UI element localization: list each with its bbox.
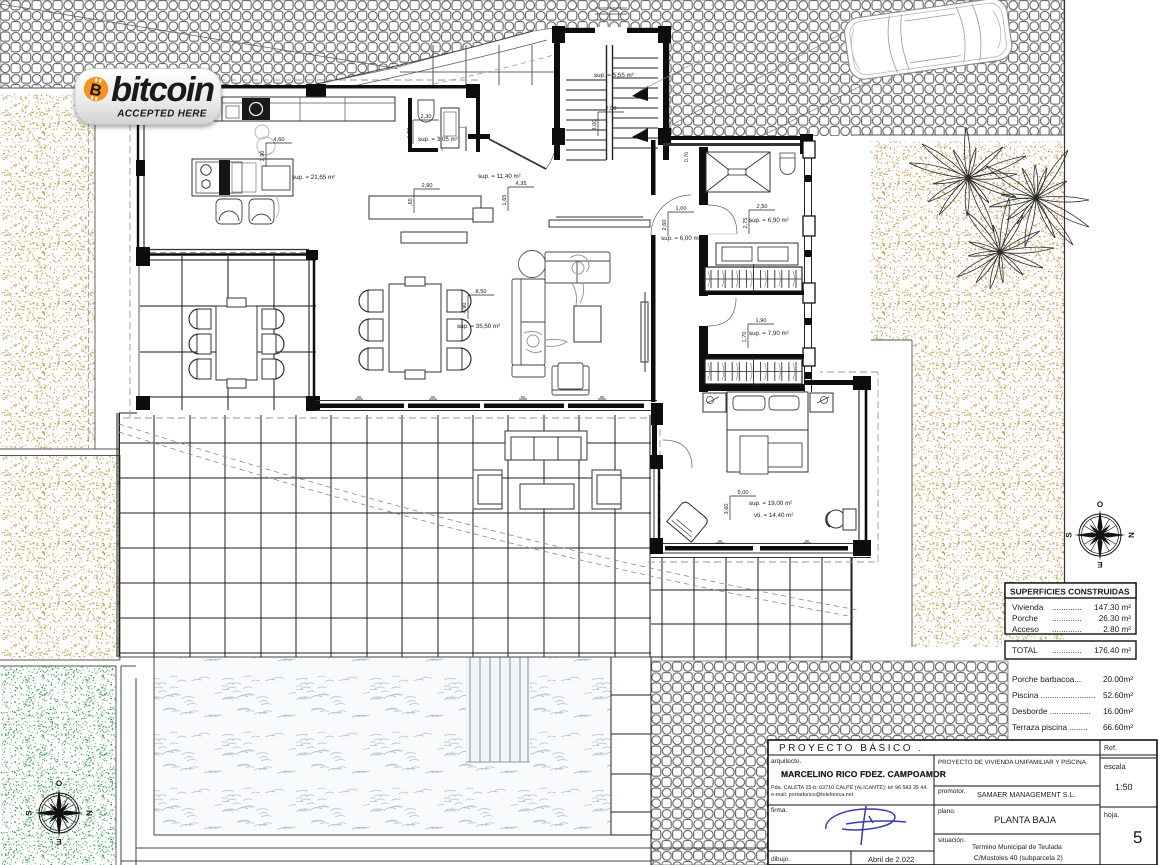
svg-text:ACCEPTED HERE: ACCEPTED HERE (116, 109, 206, 120)
svg-text:sup. = 6,00 m²: sup. = 6,00 m² (661, 235, 701, 242)
svg-text:O: O (1097, 500, 1103, 509)
svg-text:3,90: 3,90 (260, 151, 266, 162)
svg-text:5: 5 (1133, 828, 1142, 847)
svg-text:Piscina ......................: Piscina ........................ (1012, 691, 1095, 700)
svg-text:66.60m²: 66.60m² (1103, 723, 1133, 732)
svg-text:.............: ............. (1052, 646, 1082, 655)
svg-text:sup. = 3,05 m²: sup. = 3,05 m² (418, 136, 458, 143)
svg-text:escala: escala (1104, 762, 1127, 771)
svg-text:1,90: 1,90 (756, 318, 767, 324)
svg-text:SUPERFICIES CONSTRUIDAS: SUPERFICIES CONSTRUIDAS (1010, 587, 1130, 597)
svg-text:N: N (85, 810, 94, 816)
svg-text:SAMAER MANAGEMENT S.L.: SAMAER MANAGEMENT S.L. (977, 790, 1076, 799)
svg-text:16.00m²: 16.00m² (1103, 707, 1133, 716)
svg-text:sup. = 11,40 m²: sup. = 11,40 m² (478, 173, 521, 180)
svg-text:3,00: 3,00 (592, 120, 598, 131)
svg-text:N: N (1127, 532, 1136, 538)
svg-text:2,00: 2,00 (606, 106, 617, 112)
svg-text:2,50: 2,50 (757, 204, 768, 210)
svg-text:5,00: 5,00 (738, 490, 749, 496)
svg-text:1:50: 1:50 (1115, 782, 1133, 792)
svg-text:4,60: 4,60 (274, 137, 285, 143)
svg-text:PROYECTO BÁSICO .: PROYECTO BÁSICO . (779, 742, 924, 754)
svg-text:8,50: 8,50 (476, 289, 487, 295)
svg-text:Pda. CALETA 25-b; 03710 CALPE: Pda. CALETA 25-b; 03710 CALPE (ALICANTE)… (771, 785, 928, 791)
svg-text:.............: ............. (1052, 625, 1082, 634)
svg-text:2,60: 2,60 (662, 220, 668, 231)
svg-text:0,70: 0,70 (684, 152, 690, 162)
svg-text:C/Mostoles 40 (subparcela 2): C/Mostoles 40 (subparcela 2) (974, 855, 1063, 862)
svg-text:2,30: 2,30 (421, 114, 432, 120)
svg-text:.............: ............. (1052, 614, 1082, 623)
svg-text:MARCELINO RICO FDEZ. CAMPOAMOR: MARCELINO RICO FDEZ. CAMPOAMOR (781, 769, 946, 779)
svg-text:promotor.: promotor. (938, 788, 966, 795)
svg-text:hoja.: hoja. (1104, 811, 1119, 819)
svg-text:S: S (1065, 532, 1074, 538)
svg-text:2.80 m²: 2.80 m² (1103, 625, 1131, 634)
svg-text:2,75: 2,75 (743, 218, 749, 229)
svg-text:PROYECTO DE VIVIENDA UNIFAM: PROYECTO DE VIVIENDA UNIFAMILIAR Y PISCI… (938, 759, 1088, 766)
svg-text:176.40 m²: 176.40 m² (1094, 646, 1131, 655)
svg-text:situación.: situación. (938, 837, 966, 844)
svg-text:Abril de 2.022: Abril de 2.022 (868, 855, 914, 864)
svg-text:Desborde ..................: Desborde .................. (1012, 707, 1091, 716)
svg-text:sup. = 19,00 m²: sup. = 19,00 m² (749, 500, 792, 507)
svg-text:sup. = 21,65 m²: sup. = 21,65 m² (292, 174, 335, 181)
svg-text:firma.: firma. (771, 807, 787, 814)
svg-text:sup. = 5,55 m²: sup. = 5,55 m² (594, 72, 634, 79)
svg-text:TOTAL: TOTAL (1012, 646, 1038, 655)
svg-text:.............: ............. (1052, 603, 1082, 612)
svg-text:Termino Municipal de Teulada: Termino Municipal de Teulada (972, 844, 1062, 851)
svg-text:Porche barbacoa...: Porche barbacoa... (1012, 675, 1081, 684)
svg-text:plano.: plano. (938, 808, 956, 815)
svg-text:PLANTA BAJA: PLANTA BAJA (994, 815, 1057, 826)
svg-text:E: E (1097, 560, 1103, 569)
svg-text:sup. = 6,90 m²: sup. = 6,90 m² (749, 217, 789, 224)
svg-text:Acceso: Acceso (1012, 625, 1039, 634)
svg-text:1,00: 1,00 (676, 206, 687, 212)
svg-text:S: S (25, 810, 34, 816)
svg-text:dibujo.: dibujo. (771, 856, 790, 863)
svg-text:4,90: 4,90 (462, 303, 468, 314)
svg-text:Porche: Porche (1012, 614, 1038, 623)
svg-text:1,30: 1,30 (407, 128, 413, 139)
svg-text:vti. = 14,40 m²: vti. = 14,40 m² (754, 512, 793, 519)
svg-text:,65: ,65 (408, 198, 414, 206)
svg-text:4,35: 4,35 (516, 181, 527, 187)
svg-text:Ref.: Ref. (1104, 744, 1117, 752)
svg-text:147.30 m²: 147.30 m² (1094, 603, 1131, 612)
svg-text:e-mail: portadorico@telefonica: e-mail: portadorico@telefonica.net (771, 792, 854, 798)
svg-text:1,70: 1,70 (742, 332, 748, 343)
svg-text:sup. = 35,50 m²: sup. = 35,50 m² (457, 323, 500, 330)
svg-text:1,65: 1,65 (502, 195, 508, 206)
svg-text:Terraza piscina ........: Terraza piscina ........ (1012, 723, 1088, 732)
svg-text:2,90: 2,90 (422, 183, 433, 189)
svg-text:bitcoin: bitcoin (111, 71, 214, 109)
svg-text:Vivienda: Vivienda (1012, 603, 1044, 612)
svg-text:52.60m²: 52.60m² (1103, 691, 1133, 700)
svg-text:arquitecto.: arquitecto. (771, 758, 802, 765)
svg-text:20.00m²: 20.00m² (1103, 675, 1133, 684)
svg-text:3,60: 3,60 (724, 504, 730, 515)
svg-text:26.30 m²: 26.30 m² (1099, 614, 1132, 623)
svg-text:O: O (56, 779, 62, 788)
svg-text:E: E (56, 837, 62, 846)
svg-text:sup. = 7,90 m²: sup. = 7,90 m² (749, 330, 789, 337)
